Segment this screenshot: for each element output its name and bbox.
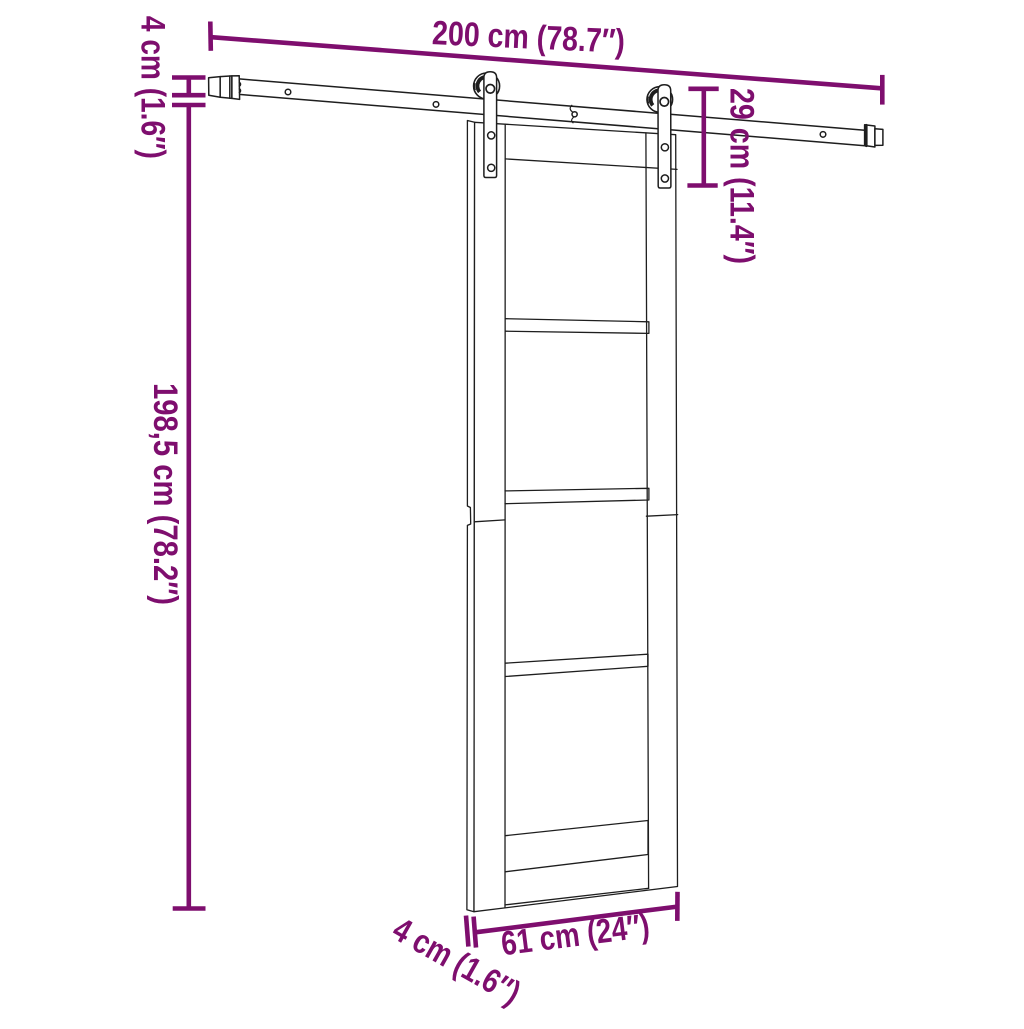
svg-text:198,5 cm (78.2″): 198,5 cm (78.2″) bbox=[146, 383, 184, 605]
svg-text:29 cm (11.4″): 29 cm (11.4″) bbox=[722, 88, 760, 264]
svg-text:4 cm (1.6″): 4 cm (1.6″) bbox=[134, 16, 172, 159]
